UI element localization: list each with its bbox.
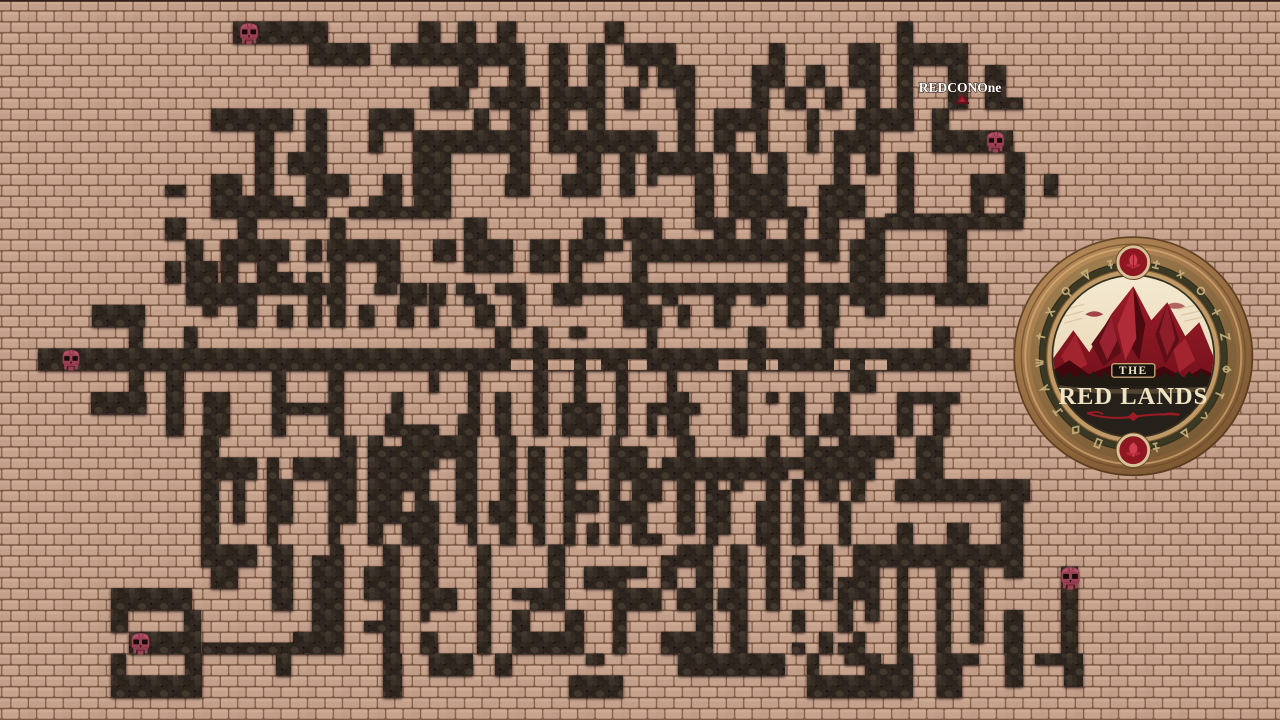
svg-text:REDCONOne: REDCONOne	[919, 80, 1002, 95]
svg-text:RED LANDS: RED LANDS	[1058, 383, 1208, 410]
svg-text:THE: THE	[1119, 365, 1148, 377]
